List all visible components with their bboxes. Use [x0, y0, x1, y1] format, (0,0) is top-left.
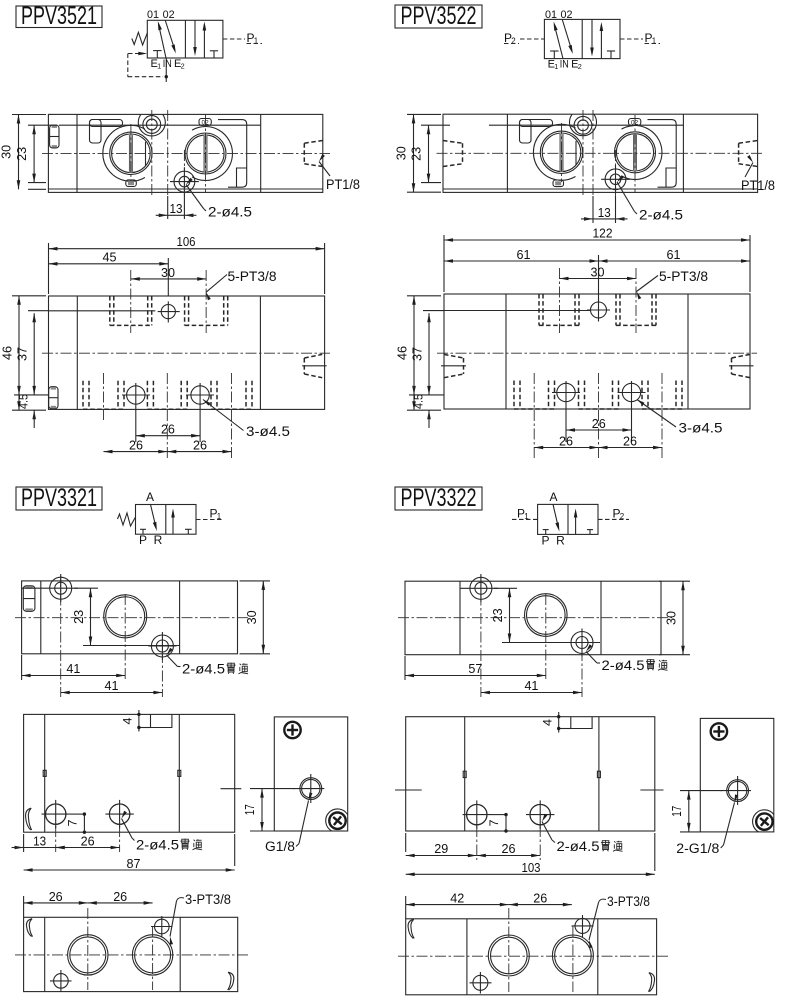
svg-text:02: 02 [631, 119, 639, 126]
svg-text:46: 46 [0, 346, 15, 360]
svg-text:2-G1/8: 2-G1/8 [676, 841, 719, 856]
svg-text:3-ø4.5: 3-ø4.5 [679, 421, 723, 436]
svg-text:PPV3521: PPV3521 [21, 2, 97, 30]
svg-text:30: 30 [591, 264, 605, 279]
svg-text:106: 106 [177, 234, 196, 249]
svg-text:PT1/8: PT1/8 [326, 177, 360, 192]
svg-text:57: 57 [468, 661, 482, 676]
svg-text:26: 26 [113, 889, 127, 904]
svg-text:61: 61 [667, 247, 681, 262]
svg-text:26: 26 [81, 834, 95, 849]
svg-text:41: 41 [105, 678, 119, 693]
svg-text:41: 41 [66, 661, 80, 676]
svg-text:IN: IN [560, 59, 569, 71]
svg-text:26: 26 [533, 891, 547, 906]
svg-text:13: 13 [598, 205, 611, 220]
svg-text:30: 30 [161, 265, 175, 280]
svg-text:3-PT3/8: 3-PT3/8 [185, 892, 231, 907]
svg-text:G1/8: G1/8 [265, 839, 295, 854]
svg-text:26: 26 [623, 433, 637, 448]
svg-text:2-ø4.5: 2-ø4.5 [182, 662, 225, 677]
svg-text:23: 23 [14, 147, 29, 161]
svg-text:1: 1 [524, 512, 529, 521]
svg-text:PPV3321: PPV3321 [21, 484, 97, 512]
svg-text:4.5: 4.5 [412, 394, 426, 409]
svg-text:1: 1 [554, 62, 558, 71]
svg-text:30: 30 [244, 610, 259, 624]
svg-text:26: 26 [129, 438, 143, 453]
svg-text:2-ø4.5: 2-ø4.5 [557, 839, 600, 854]
svg-text:26: 26 [49, 889, 63, 904]
svg-text:45: 45 [103, 249, 117, 264]
svg-text:4: 4 [541, 719, 555, 726]
svg-text:46: 46 [395, 346, 410, 360]
svg-text:37: 37 [410, 347, 425, 361]
svg-text:1: 1 [254, 37, 259, 46]
svg-text:42: 42 [450, 891, 464, 906]
svg-text:2-ø4.5: 2-ø4.5 [602, 658, 645, 673]
svg-text:4: 4 [121, 717, 135, 724]
svg-text:37: 37 [15, 347, 30, 361]
svg-text:26: 26 [502, 841, 516, 856]
svg-text:26: 26 [161, 422, 175, 437]
svg-text:2: 2 [181, 62, 185, 71]
svg-text:30: 30 [664, 611, 679, 625]
svg-text:23: 23 [71, 610, 86, 624]
svg-text:3-ø4.5: 3-ø4.5 [246, 424, 290, 439]
svg-text:5-PT3/8: 5-PT3/8 [228, 269, 277, 284]
svg-text:30: 30 [0, 145, 14, 159]
svg-text:2: 2 [620, 512, 624, 521]
svg-text:2-ø4.5: 2-ø4.5 [136, 838, 179, 853]
svg-text:A: A [146, 490, 154, 504]
svg-text:29: 29 [434, 841, 448, 856]
svg-text:13: 13 [170, 201, 183, 216]
svg-text:7: 7 [487, 819, 501, 826]
svg-text:PPV3322: PPV3322 [401, 484, 477, 512]
svg-text:23: 23 [490, 608, 505, 622]
svg-text:2: 2 [578, 62, 582, 71]
svg-text:7: 7 [66, 819, 80, 826]
svg-text:30: 30 [394, 146, 409, 160]
svg-text:01: 01 [147, 9, 159, 21]
svg-text:26: 26 [193, 438, 207, 453]
svg-text:1: 1 [652, 37, 657, 46]
svg-text:26: 26 [559, 433, 573, 448]
svg-text:4.5: 4.5 [17, 394, 31, 409]
svg-text:61: 61 [517, 247, 531, 262]
svg-text:2-ø4.5: 2-ø4.5 [208, 205, 252, 220]
svg-text:103: 103 [522, 860, 541, 875]
svg-text:2: 2 [511, 37, 515, 46]
svg-text:13: 13 [33, 834, 46, 849]
svg-text:26: 26 [592, 416, 606, 431]
svg-text:IN: IN [163, 58, 172, 70]
svg-text:PPV3522: PPV3522 [401, 2, 477, 30]
svg-text:02: 02 [163, 9, 175, 21]
svg-text:41: 41 [524, 678, 538, 693]
svg-text:17: 17 [669, 806, 684, 817]
svg-text:17: 17 [242, 804, 257, 815]
svg-text:PT1/8: PT1/8 [741, 178, 775, 193]
svg-text:5-PT3/8: 5-PT3/8 [659, 269, 708, 284]
svg-text:A: A [549, 490, 557, 504]
svg-text:1: 1 [157, 62, 161, 71]
svg-text:02: 02 [202, 119, 210, 126]
svg-text:P: P [139, 533, 147, 547]
svg-text:R: R [556, 534, 565, 548]
svg-text:3-PT3/8: 3-PT3/8 [607, 894, 650, 909]
svg-text:1: 1 [217, 512, 222, 521]
svg-text:2-ø4.5: 2-ø4.5 [639, 208, 683, 223]
svg-text:87: 87 [127, 856, 141, 871]
svg-text:23: 23 [409, 147, 424, 161]
svg-text:R: R [154, 533, 163, 547]
svg-text:P: P [541, 534, 549, 548]
svg-text:122: 122 [593, 226, 613, 241]
